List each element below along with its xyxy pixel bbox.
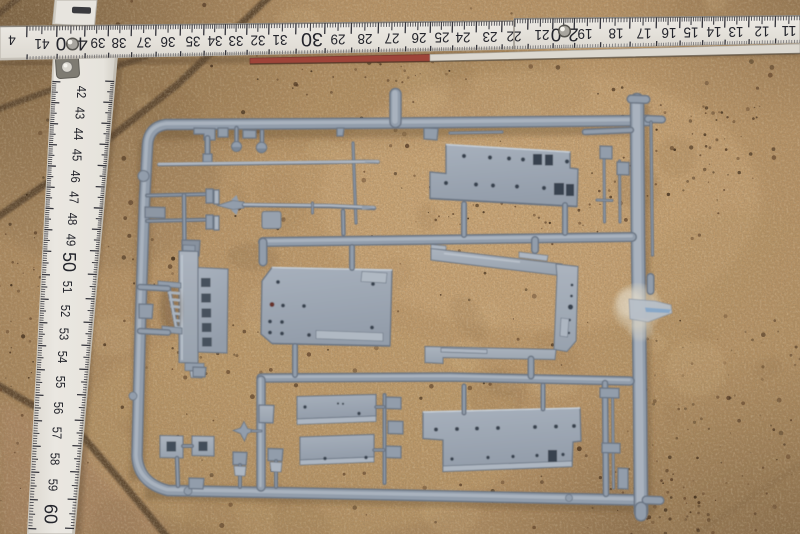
svg-text:59: 59 bbox=[46, 479, 61, 492]
svg-text:38: 38 bbox=[112, 34, 127, 50]
svg-text:51: 51 bbox=[60, 281, 75, 294]
svg-text:25: 25 bbox=[435, 29, 450, 45]
svg-text:24: 24 bbox=[456, 28, 471, 44]
svg-text:33: 33 bbox=[229, 32, 244, 48]
svg-text:39: 39 bbox=[91, 34, 106, 50]
svg-text:0: 0 bbox=[56, 33, 67, 53]
svg-text:13: 13 bbox=[729, 23, 744, 39]
svg-text:49: 49 bbox=[63, 234, 78, 247]
svg-text:18: 18 bbox=[609, 25, 624, 41]
svg-text:37: 37 bbox=[137, 33, 152, 49]
svg-text:57: 57 bbox=[49, 427, 64, 440]
svg-text:32: 32 bbox=[251, 32, 266, 48]
svg-text:45: 45 bbox=[69, 149, 84, 162]
svg-text:53: 53 bbox=[56, 328, 71, 341]
svg-text:34: 34 bbox=[208, 32, 223, 48]
svg-text:17: 17 bbox=[637, 24, 652, 40]
svg-text:23: 23 bbox=[483, 28, 498, 44]
svg-text:29: 29 bbox=[331, 30, 346, 46]
svg-text:50: 50 bbox=[59, 252, 80, 272]
svg-text:36: 36 bbox=[161, 33, 176, 49]
svg-text:52: 52 bbox=[58, 305, 73, 318]
svg-text:12: 12 bbox=[755, 22, 770, 38]
svg-text:42: 42 bbox=[74, 86, 89, 99]
svg-text:46: 46 bbox=[68, 170, 83, 183]
svg-text:56: 56 bbox=[51, 402, 66, 415]
svg-text:30: 30 bbox=[301, 28, 323, 49]
svg-text:47: 47 bbox=[66, 191, 81, 204]
svg-text:43: 43 bbox=[72, 107, 87, 120]
svg-text:31: 31 bbox=[273, 31, 288, 47]
svg-text:19: 19 bbox=[578, 25, 593, 41]
svg-text:48: 48 bbox=[65, 213, 80, 226]
svg-text:35: 35 bbox=[186, 33, 201, 49]
svg-text:55: 55 bbox=[53, 376, 68, 389]
svg-text:16: 16 bbox=[662, 24, 677, 40]
svg-text:41: 41 bbox=[35, 35, 50, 51]
svg-text:54: 54 bbox=[55, 351, 70, 364]
svg-text:26: 26 bbox=[412, 29, 427, 45]
svg-text:15: 15 bbox=[684, 24, 699, 40]
svg-text:4: 4 bbox=[8, 32, 16, 47]
svg-text:28: 28 bbox=[358, 30, 373, 46]
svg-text:27: 27 bbox=[385, 29, 400, 45]
svg-text:44: 44 bbox=[71, 128, 86, 141]
svg-text:21: 21 bbox=[535, 26, 550, 42]
svg-text:60: 60 bbox=[41, 504, 62, 524]
svg-text:11: 11 bbox=[782, 22, 797, 38]
svg-text:58: 58 bbox=[47, 453, 62, 466]
svg-text:14: 14 bbox=[707, 23, 722, 39]
svg-text:22: 22 bbox=[507, 28, 522, 44]
